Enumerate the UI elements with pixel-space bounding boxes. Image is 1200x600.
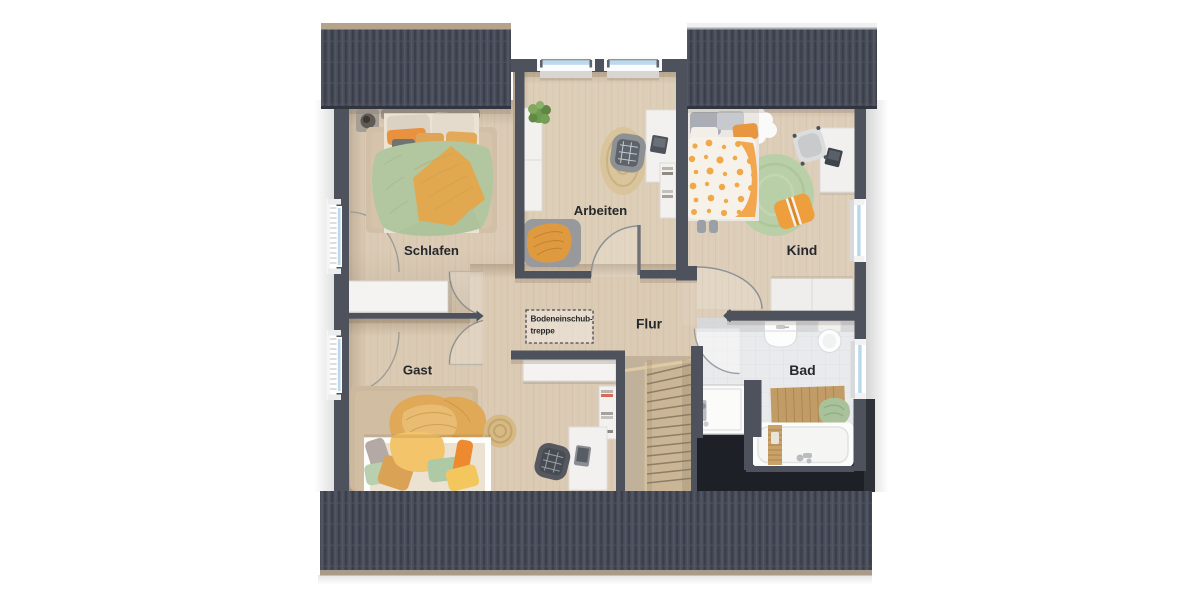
svg-text:Flur: Flur (636, 317, 663, 332)
svg-text:Gast: Gast (403, 363, 433, 378)
svg-text:Arbeiten: Arbeiten (574, 203, 628, 218)
svg-text:Schlafen: Schlafen (404, 243, 459, 258)
svg-text:Bodeneinschub-: Bodeneinschub- (531, 315, 593, 324)
svg-text:treppe: treppe (531, 327, 556, 336)
svg-text:Kind: Kind (787, 243, 818, 258)
svg-text:Bad: Bad (789, 362, 815, 378)
